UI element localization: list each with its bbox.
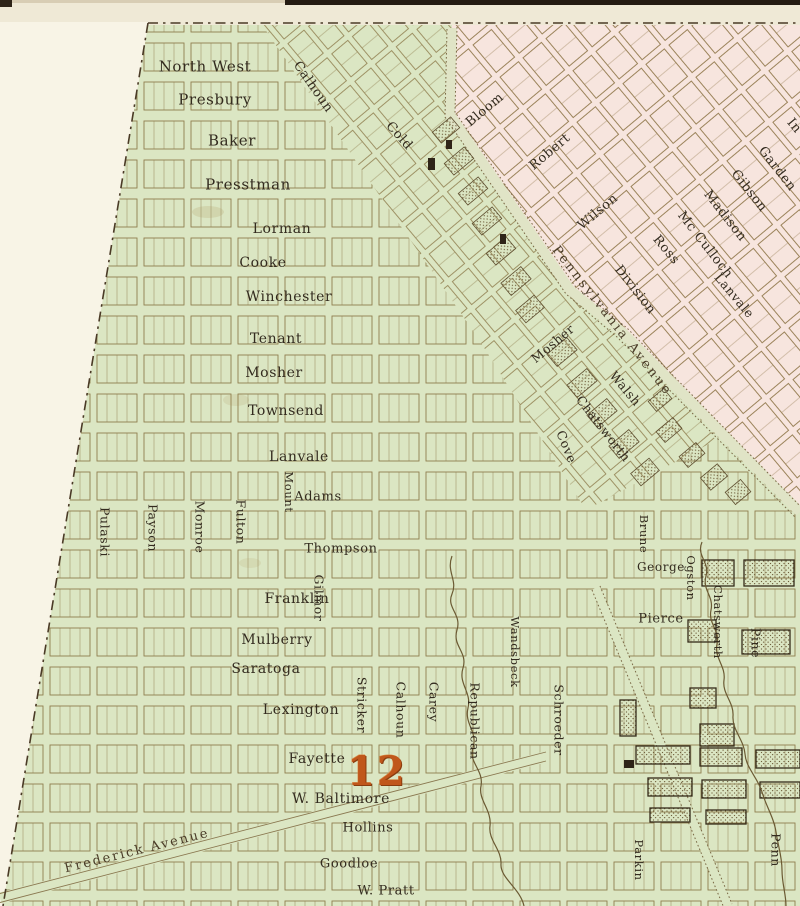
street-labels: North WestPresburyBakerPresstmanLormanCo… [0, 0, 800, 906]
street-label: Tenant [250, 332, 302, 346]
street-label: Parkin [632, 839, 644, 880]
street-label: Monroe [193, 501, 206, 554]
street-label: Townsend [248, 404, 324, 418]
street-label: Schroeder [552, 684, 565, 755]
street-label: Walsh [607, 369, 643, 408]
street-label: Pierce [638, 613, 683, 626]
street-label: Ogston [684, 555, 696, 600]
street-label: Garden [756, 144, 798, 193]
street-label: Gilmor [312, 575, 325, 622]
street-label: Cold [383, 120, 415, 153]
street-label: Pulaski [98, 507, 111, 557]
street-label: Carey [427, 682, 440, 722]
street-label: Mosher [529, 323, 577, 366]
street-label: Wilson [575, 192, 620, 233]
street-label: W. Pratt [357, 885, 414, 898]
street-label: Fulton [234, 500, 247, 545]
avenue-label: Frederick Avenue [63, 827, 211, 876]
street-label: Lorman [253, 222, 312, 236]
street-label: Division [612, 263, 658, 317]
street-label: Republican [468, 682, 481, 759]
street-label: North West [159, 60, 252, 75]
street-label: Mosher [245, 366, 303, 380]
street-label: George [637, 561, 685, 573]
street-label: Robert [527, 131, 573, 172]
street-label: Baker [208, 134, 256, 149]
street-label: Thompson [304, 543, 377, 556]
street-label-partial: In [784, 116, 800, 136]
street-label: Cooke [239, 256, 286, 270]
street-label: Pine [749, 628, 762, 658]
district-number-label: 12 [347, 752, 407, 792]
street-label: Ross [650, 233, 681, 267]
street-label: Chatsworth [711, 585, 723, 659]
street-label: Chatsworth [574, 394, 633, 465]
street-label: Penn [769, 833, 782, 867]
street-label: Lexington [263, 703, 339, 717]
street-label: Madison [701, 188, 749, 244]
street-label: Adams [294, 491, 341, 504]
street-label: Presbury [178, 93, 252, 108]
street-label: Gibson [729, 168, 770, 215]
street-label: Calhoun [394, 682, 407, 739]
street-label: Cove [554, 429, 578, 465]
street-label: Mulberry [241, 633, 312, 647]
street-label: Lanvale [712, 271, 756, 320]
street-label: Winchester [246, 290, 333, 304]
street-label: Saratoga [231, 662, 300, 676]
street-label: Calhoun [291, 59, 335, 115]
street-label: Stricker [355, 677, 368, 733]
map-canvas: North WestPresburyBakerPresstmanLormanCo… [0, 0, 800, 906]
street-label: Presstman [205, 178, 291, 193]
street-label: Goodloe [320, 858, 378, 871]
street-label: Lanvale [269, 450, 329, 464]
street-label: Wandsbeck [508, 616, 520, 687]
street-label: Bloom [464, 91, 507, 130]
street-label: Mount [282, 471, 294, 512]
street-label: Fayette [288, 752, 345, 766]
street-label: Payson [146, 504, 159, 552]
street-label: Hollins [343, 822, 394, 835]
street-label: Brune [637, 515, 649, 554]
